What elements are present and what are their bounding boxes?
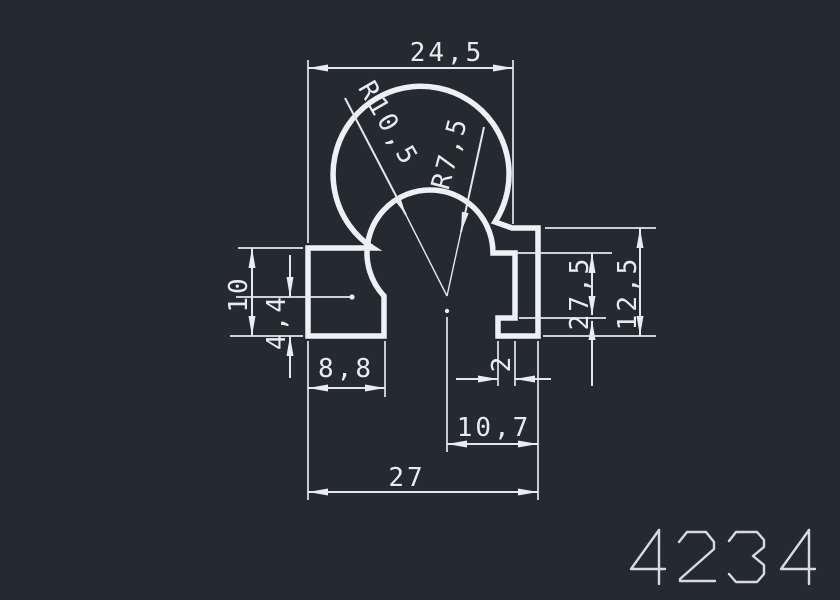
part-number [631, 530, 815, 584]
dimension-radius-inner: R7,5 [426, 113, 484, 296]
arrowhead-down [287, 277, 294, 297]
part-number-digit [729, 532, 764, 582]
dimension-left-offset: 4,4 [262, 255, 294, 378]
dim-label-right-height: 12,5 [613, 256, 643, 331]
dim-label-tab-width: 8,8 [318, 354, 374, 384]
arrowhead-left [308, 65, 328, 72]
dim-label-offset-width: 10,7 [457, 413, 532, 443]
dim-label-top-width: 24,5 [410, 38, 485, 68]
cad-drawing-canvas: 24,5 R10,5 R7,5 10 4,4 8,8 [0, 0, 840, 600]
arrowhead-right [493, 65, 513, 72]
profile-path [308, 86, 538, 336]
arrowhead-bottom [249, 316, 256, 336]
center-dot-vertical [445, 309, 449, 313]
part-number-digit [679, 532, 715, 581]
arrowhead [394, 196, 406, 215]
arrowhead-left [308, 385, 328, 392]
dim-label-right-inner-height: 27,5 [565, 256, 595, 331]
arrowhead-left [308, 489, 328, 496]
dimension-right-inner-height: 27,5 [517, 253, 612, 386]
dim-label-left-offset: 4,4 [262, 294, 292, 350]
center-dot-horizontal [349, 294, 354, 299]
arrowhead-right [518, 489, 538, 496]
arrowhead-left [515, 376, 535, 383]
arrowhead-top [249, 248, 256, 268]
leader-tail [406, 215, 447, 296]
arrowhead-right [365, 385, 385, 392]
dim-label-left-height: 10 [224, 275, 254, 312]
dimension-right-height: 12,5 [543, 228, 656, 336]
dimension-notch-width: 2 [456, 341, 551, 386]
dimension-offset-width: 10,7 [447, 413, 538, 448]
dim-label-notch-width: 2 [487, 354, 517, 373]
profile-outline [308, 86, 538, 336]
arrowhead [461, 212, 469, 232]
dimension-tab-width: 8,8 [308, 341, 385, 500]
dim-label-total-width: 27 [388, 463, 425, 493]
cad-drawing-svg: 24,5 R10,5 R7,5 10 4,4 8,8 [0, 0, 840, 600]
dim-label-inner-radius: R7,5 [426, 113, 474, 193]
arrowhead-top [637, 228, 644, 248]
arrowhead-right [478, 376, 498, 383]
leader-tail [447, 232, 461, 296]
